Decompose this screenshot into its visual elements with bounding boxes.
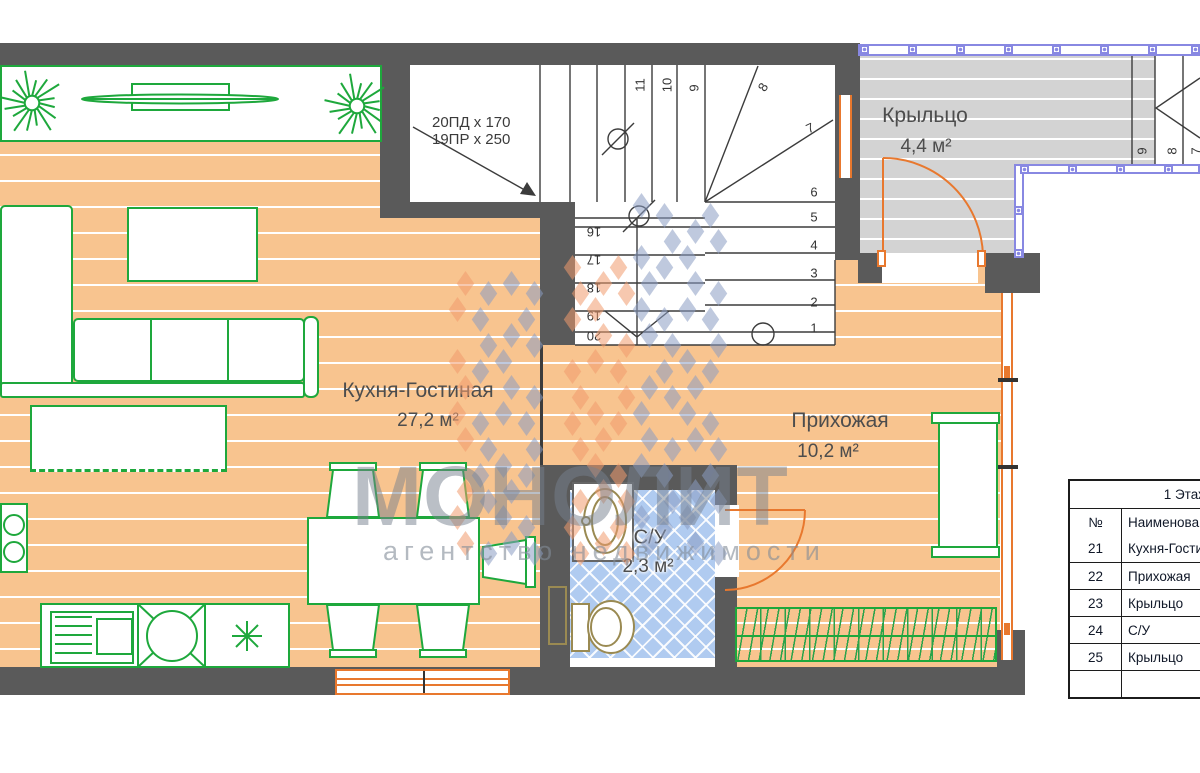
- plan-linework: [0, 0, 1200, 773]
- step-number: 2: [810, 295, 817, 310]
- railing-post: [1100, 45, 1109, 54]
- stair-spec: 20ПД x 170 19ПР x 250: [432, 114, 511, 148]
- railing-post: [1020, 165, 1029, 174]
- step-number: 11: [633, 78, 648, 92]
- railing-post: [1052, 45, 1061, 54]
- porch-window: [839, 95, 852, 178]
- railing-post: [908, 45, 917, 54]
- room-area-hallway: 10,2 м²: [797, 441, 859, 463]
- railing-post: [956, 45, 965, 54]
- step-number: 3: [810, 266, 817, 281]
- legend-table-row: 21Кухня-Гостиная: [1070, 535, 1200, 562]
- stair-spec-line2: 19ПР x 250: [432, 131, 511, 148]
- door-jamb: [877, 250, 886, 267]
- railing-post: [1191, 45, 1200, 54]
- legend-table-row: 25Крыльцо: [1070, 643, 1200, 670]
- step-number: 18: [587, 281, 601, 296]
- legend-table-row: [1070, 670, 1200, 697]
- room-area-kitchen-living: 27,2 м²: [397, 410, 459, 432]
- railing-post: [1004, 45, 1013, 54]
- legend-table-title: 1 Этаж: [1070, 481, 1200, 508]
- legend-table-header: № Наименование: [1070, 508, 1200, 535]
- railing-post: [1148, 45, 1157, 54]
- step-number: 17: [587, 253, 601, 268]
- legend-col-number: №: [1070, 509, 1122, 535]
- room-area-porch: 4,4 м²: [900, 136, 951, 158]
- step-number: 5: [810, 210, 817, 225]
- room-label-hallway: Прихожая: [791, 409, 888, 433]
- step-number: 16: [587, 225, 601, 240]
- window-mullion-mark: [998, 378, 1018, 382]
- step-number: 7: [1189, 147, 1200, 154]
- legend-table-row: 24С/У: [1070, 616, 1200, 643]
- step-number: 8: [1165, 147, 1180, 154]
- legend-table-row: 22Прихожая: [1070, 562, 1200, 589]
- legend-table-row: 23Крыльцо: [1070, 589, 1200, 616]
- hallway-window-strip: [1001, 293, 1013, 660]
- step-number: 20: [587, 329, 601, 344]
- kitchen-window: [335, 669, 510, 695]
- legend-table: 1 Этаж № Наименование 21Кухня-Гостиная22…: [1068, 479, 1200, 699]
- step-number: 6: [810, 185, 817, 200]
- step-number: 9: [1135, 147, 1150, 154]
- stair-spec-line1: 20ПД x 170: [432, 114, 511, 131]
- door-jamb: [977, 250, 986, 267]
- room-area-bathroom: 2,3 м²: [622, 556, 673, 578]
- floor-plan: Кухня-Гостиная 27,2 м² Прихожая 10,2 м² …: [0, 0, 1200, 773]
- railing-post: [1116, 165, 1125, 174]
- step-number: 10: [660, 78, 675, 92]
- room-label-kitchen-living: Кухня-Гостиная: [342, 379, 493, 403]
- step-number: 4: [810, 238, 817, 253]
- step-number: 9: [687, 84, 702, 91]
- railing-post: [1068, 165, 1077, 174]
- railing-post: [1164, 165, 1173, 174]
- legend-col-name: Наименование: [1122, 509, 1200, 535]
- window-mullion-mark: [998, 465, 1018, 469]
- railing-post: [1014, 249, 1023, 258]
- room-label-porch: Крыльцо: [882, 104, 968, 128]
- railing-post: [1014, 206, 1023, 215]
- step-number: 1: [810, 321, 817, 336]
- railing-post: [860, 45, 869, 54]
- room-label-bathroom: С/У: [634, 527, 667, 550]
- step-number: 19: [587, 309, 601, 324]
